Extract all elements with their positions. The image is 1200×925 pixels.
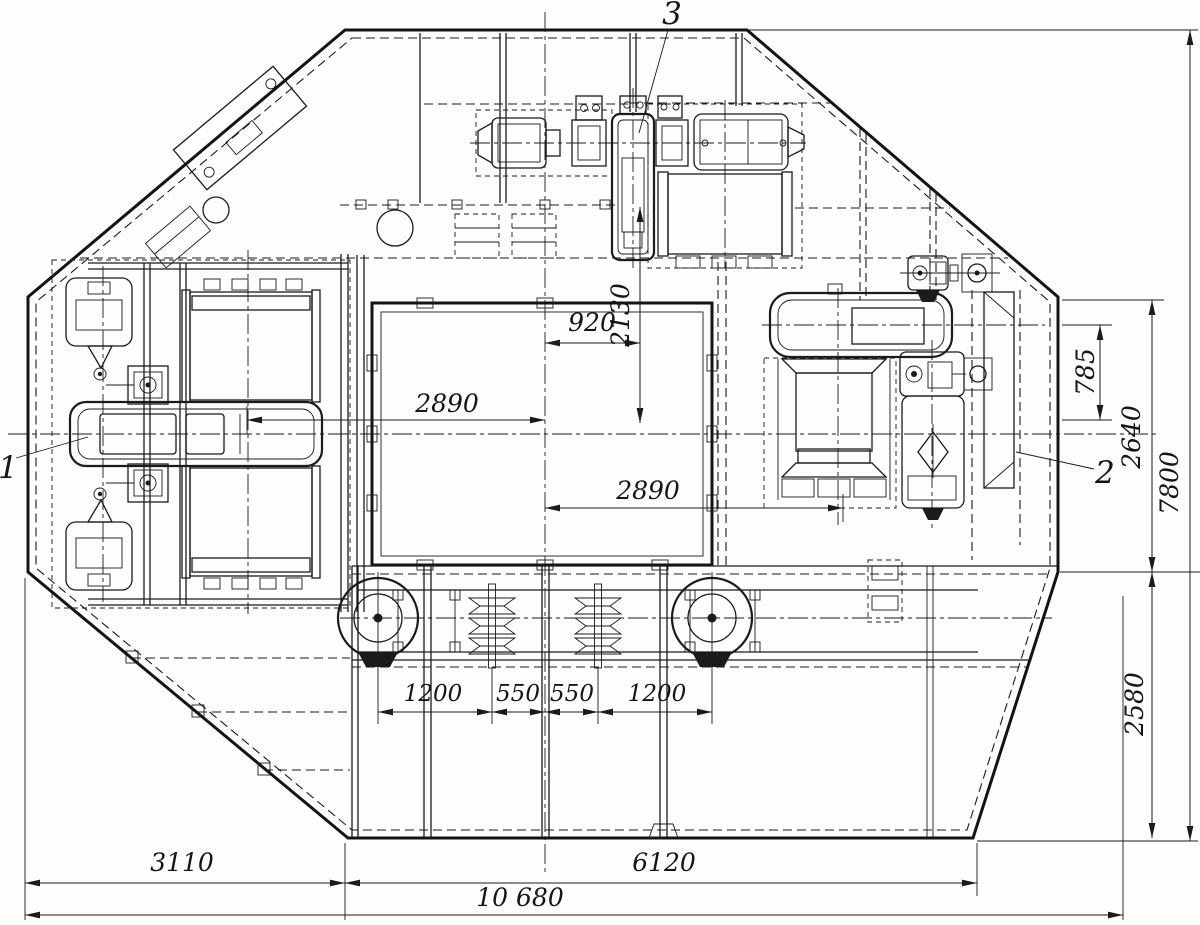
callout-label-2: 2 <box>1094 455 1115 491</box>
aux-pump-unit <box>900 254 1000 302</box>
dim-label-10680: 10 680 <box>476 883 564 912</box>
machinery-deck-plan-drawing: 920 2130 2890 2890 785 2640 2580 7800 <box>0 0 1200 925</box>
dim-label-3110: 3110 <box>150 848 214 877</box>
callout-label-1: 1 <box>0 450 18 486</box>
callout-2: 2 <box>1016 452 1115 491</box>
dimension-2890-lower: 2890 <box>545 476 843 522</box>
dim-label-1200-left: 1200 <box>404 681 463 707</box>
manhole-left <box>203 197 229 223</box>
dimension-3110: 3110 <box>25 578 345 920</box>
dim-label-6120: 6120 <box>632 848 696 877</box>
dim-label-2640: 2640 <box>1117 405 1146 470</box>
dimension-6120: 6120 <box>345 843 977 896</box>
dimension-785: 785 <box>1062 325 1112 420</box>
left-winch-group <box>52 254 350 612</box>
right-lower-unit <box>902 396 964 520</box>
dimension-2580: 2580 <box>1060 572 1200 838</box>
small-foundation-box <box>868 560 902 622</box>
sheave-right <box>672 572 752 667</box>
bottom-left-compartment <box>126 566 358 838</box>
fairlead-right <box>575 584 621 668</box>
dimension-2640: 2640 <box>1062 300 1164 572</box>
central-hatch <box>357 255 726 612</box>
dim-label-550-left: 550 <box>496 681 540 707</box>
dim-label-2580: 2580 <box>1120 672 1149 737</box>
skewed-locker-lower <box>146 206 211 268</box>
left-motor-bottom <box>66 464 168 590</box>
dimension-2890-upper: 2890 <box>247 389 545 434</box>
blueprint-canvas: 920 2130 2890 2890 785 2640 2580 7800 <box>0 0 1200 925</box>
dim-label-550-right: 550 <box>550 681 594 707</box>
callout-label-3: 3 <box>662 0 682 32</box>
foundation-grating-left <box>455 214 499 258</box>
left-motor-top <box>66 278 168 404</box>
dim-label-785: 785 <box>1071 348 1100 396</box>
manhole-center <box>377 210 413 246</box>
dim-label-7800: 7800 <box>1155 451 1184 515</box>
right-drive-motor-2 <box>900 352 992 396</box>
dim-label-1200-right: 1200 <box>628 681 687 707</box>
left-drum-bottom <box>182 466 320 589</box>
fairlead-left <box>469 584 515 668</box>
dim-label-2890-upper: 2890 <box>414 389 479 418</box>
dim-label-2890-lower: 2890 <box>615 476 680 505</box>
right-drum <box>778 359 890 500</box>
skewed-locker-upper <box>173 66 306 189</box>
left-drum-top <box>182 279 320 402</box>
dim-label-2130: 2130 <box>606 283 635 348</box>
foundation-grating-right <box>512 214 556 258</box>
